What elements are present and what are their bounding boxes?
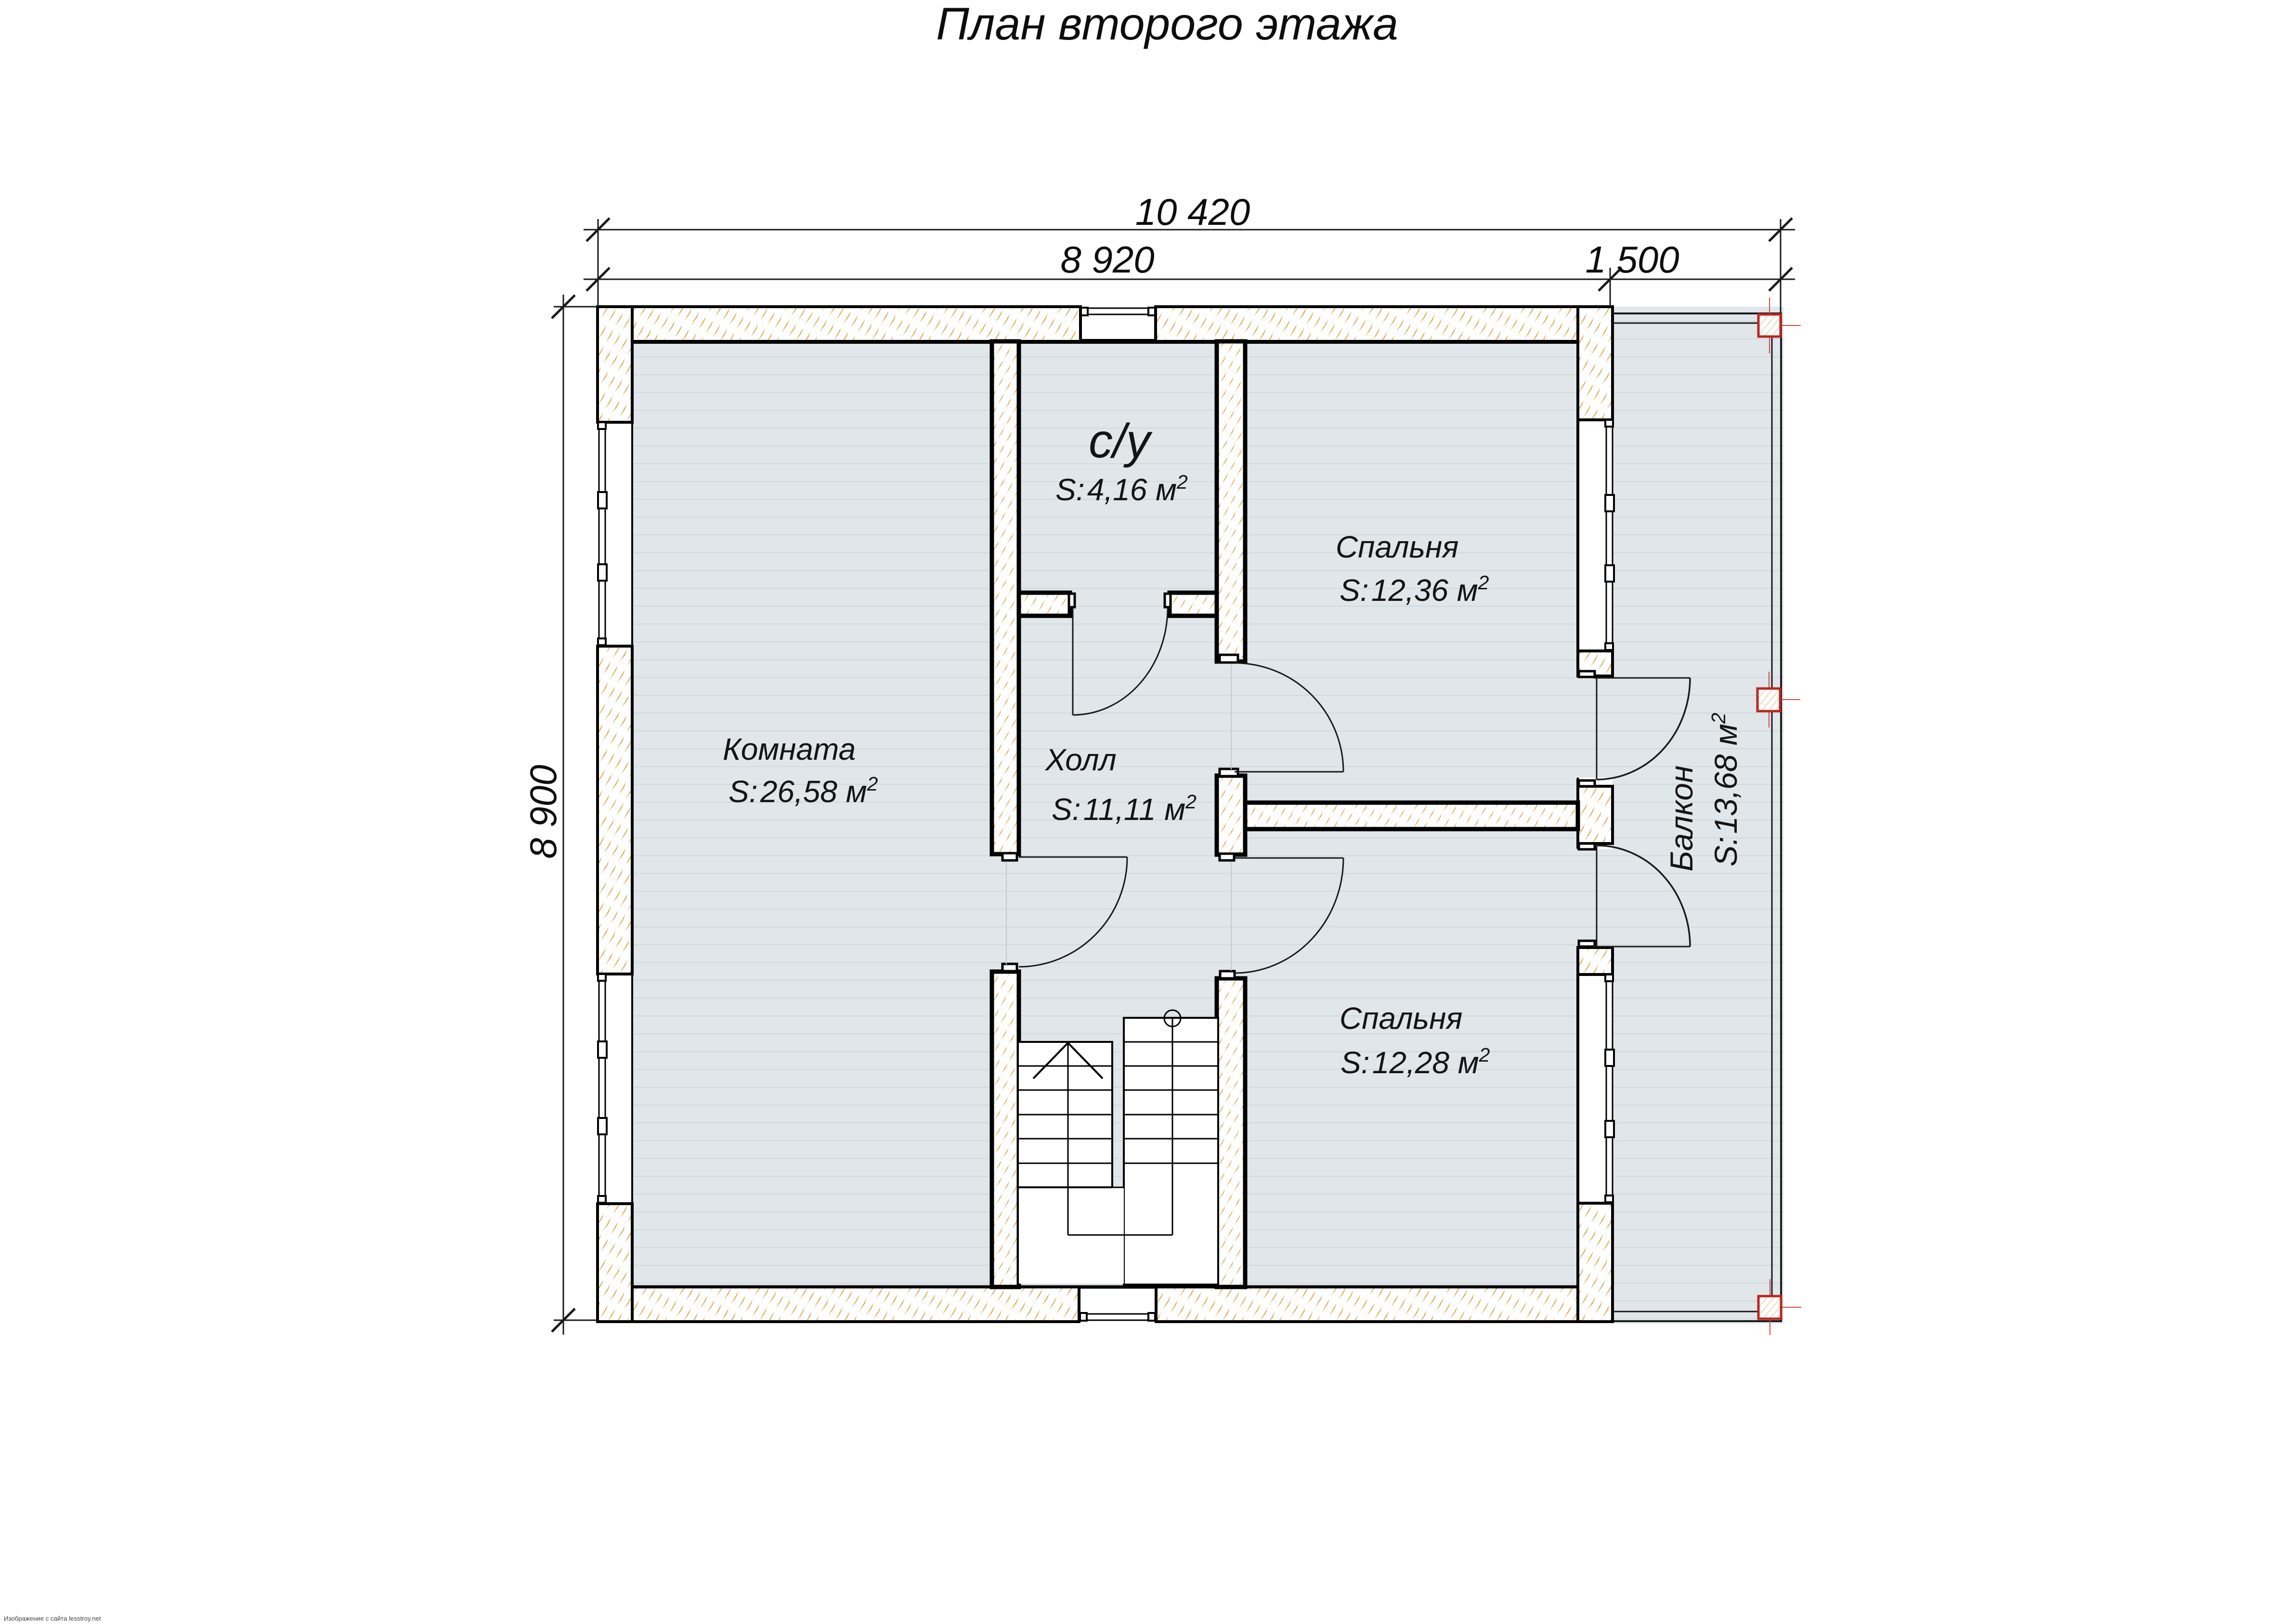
- svg-text:Спальня: Спальня: [1340, 1001, 1462, 1036]
- svg-text:Холл: Холл: [1044, 742, 1117, 777]
- svg-text:8 920: 8 920: [1060, 238, 1154, 281]
- svg-text:Спальня: Спальня: [1336, 530, 1458, 564]
- svg-text:Изображение с сайта lesstroy.n: Изображение с сайта lesstroy.net: [4, 1615, 101, 1622]
- svg-text:Комната: Комната: [723, 732, 856, 767]
- svg-text:S: 11,11 м2: S: 11,11 м2: [1052, 791, 1197, 827]
- svg-text:План второго этажа: План второго этажа: [936, 0, 1398, 50]
- svg-text:с/у: с/у: [1089, 414, 1153, 468]
- svg-text:Балкон: Балкон: [1664, 766, 1699, 871]
- svg-text:S: 26,58 м2: S: 26,58 м2: [729, 773, 878, 809]
- svg-text:8 900: 8 900: [522, 765, 564, 858]
- svg-text:S: 12,28 м2: S: 12,28 м2: [1340, 1044, 1490, 1080]
- svg-text:S: 13,68 м2: S: 13,68 м2: [1707, 713, 1744, 867]
- svg-text:10 420: 10 420: [1135, 191, 1250, 233]
- svg-text:S: 12,36 м2: S: 12,36 м2: [1340, 572, 1489, 608]
- svg-text:S: 4,16 м2: S: 4,16 м2: [1055, 471, 1188, 507]
- svg-text:1 500: 1 500: [1585, 238, 1679, 281]
